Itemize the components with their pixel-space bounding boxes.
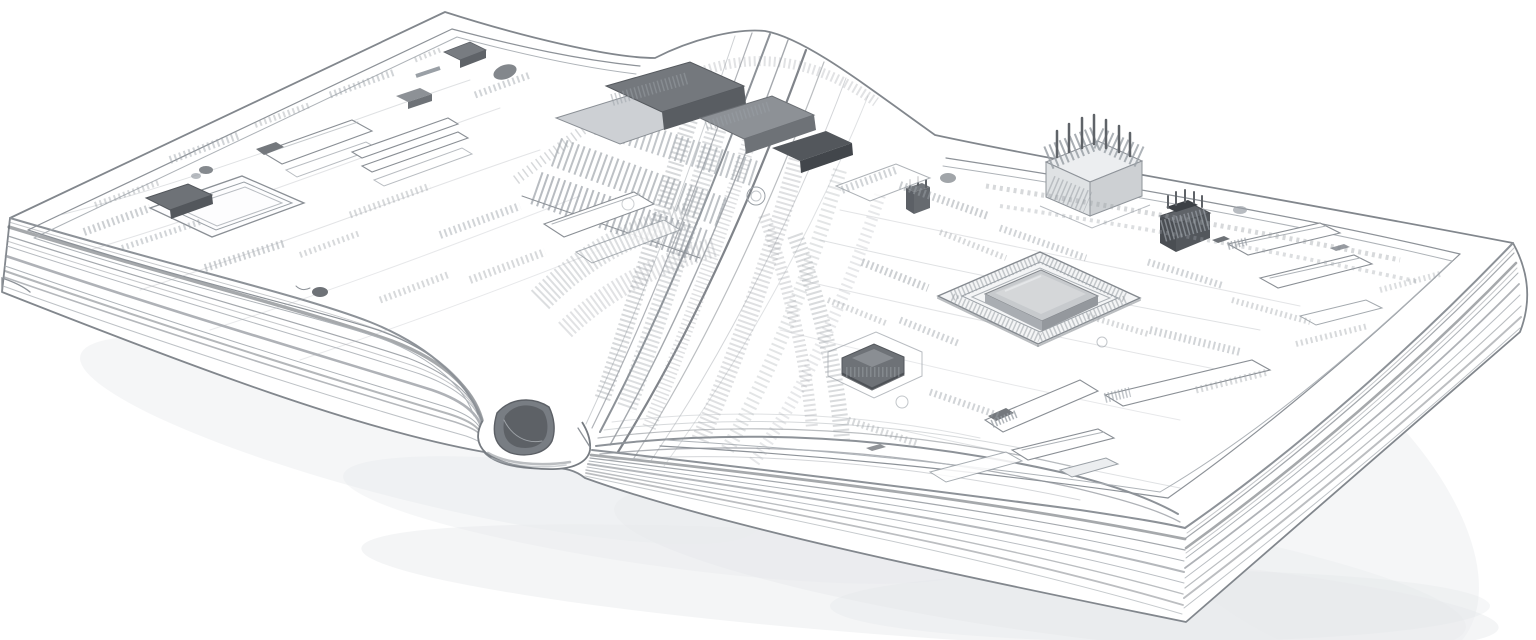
book-illustration-canvas	[0, 0, 1536, 640]
book-illustration-figure	[0, 0, 1536, 640]
